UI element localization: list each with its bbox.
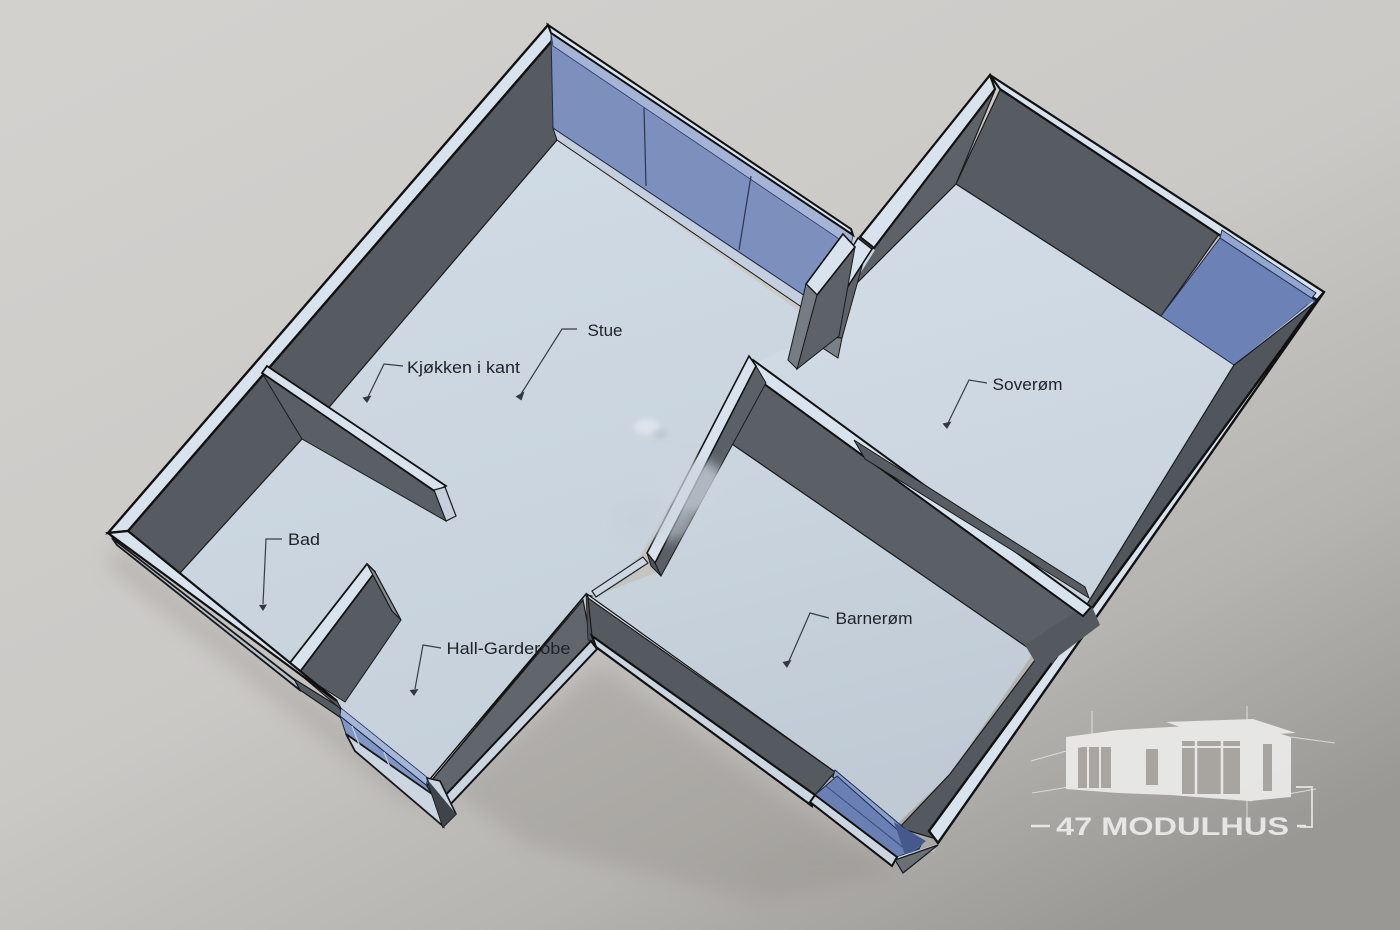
svg-text:Bad: Bad <box>288 530 320 549</box>
svg-text:Soverøm: Soverøm <box>993 375 1063 394</box>
svg-text:Barnerøm: Barnerøm <box>836 609 913 628</box>
svg-text:Hall-Garderobe: Hall-Garderobe <box>447 639 571 658</box>
svg-text:47 MODULHUS: 47 MODULHUS <box>1056 813 1289 841</box>
svg-text:Kjøkken i kant: Kjøkken i kant <box>407 358 520 377</box>
svg-text:Stue: Stue <box>588 321 623 340</box>
